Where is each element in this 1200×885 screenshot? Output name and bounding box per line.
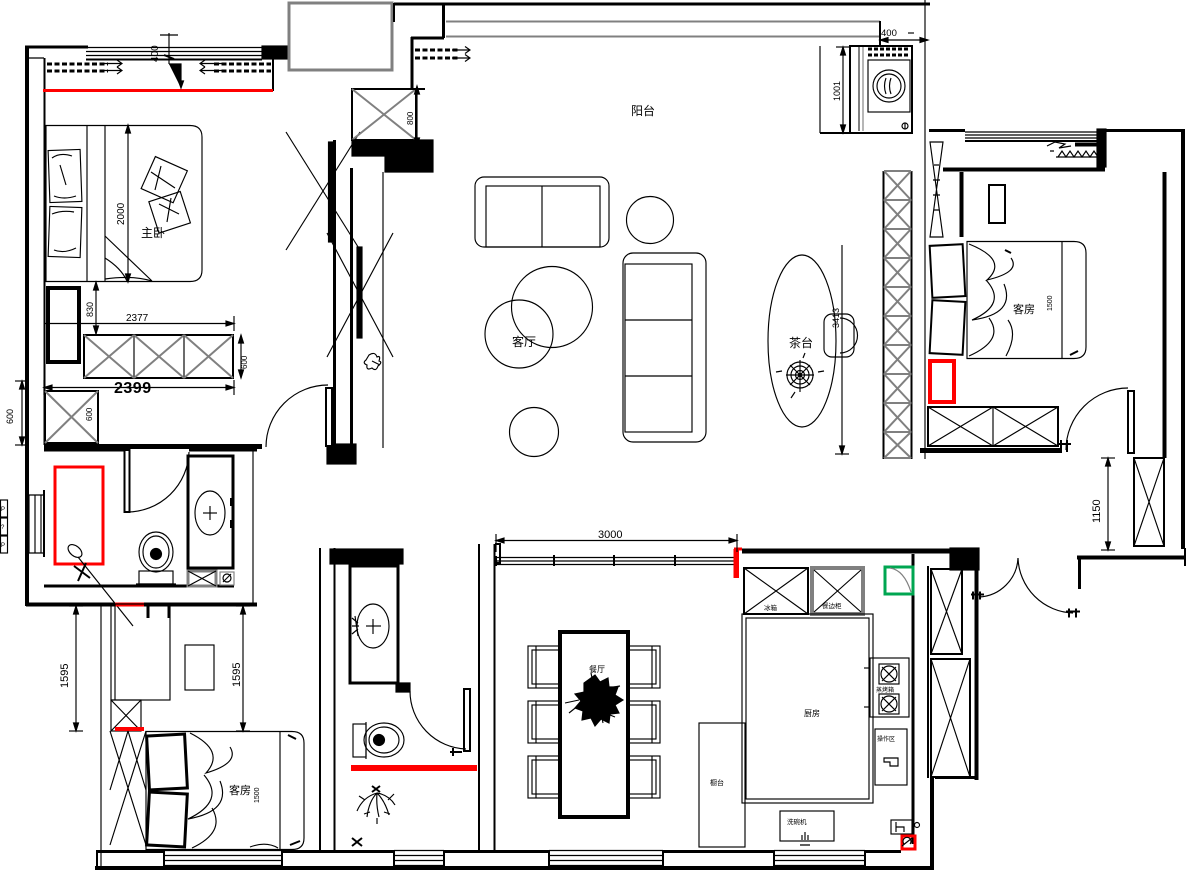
svg-text:3000: 3000	[598, 529, 622, 541]
svg-text:P: P	[1, 507, 5, 513]
svg-text:餐边柜: 餐边柜	[822, 601, 842, 610]
svg-text:餐厅: 餐厅	[589, 665, 605, 674]
svg-text:1500: 1500	[254, 787, 261, 803]
svg-text:操作区: 操作区	[877, 735, 895, 743]
svg-text:1001: 1001	[832, 81, 842, 101]
svg-text:600: 600	[85, 407, 94, 421]
svg-text:1595: 1595	[59, 664, 71, 688]
svg-text:400: 400	[150, 45, 161, 62]
svg-text:阳台: 阳台	[631, 103, 655, 118]
svg-text:主卧: 主卧	[141, 226, 165, 240]
svg-text:茶台: 茶台	[789, 335, 813, 350]
svg-text:600: 600	[240, 355, 249, 369]
svg-text:蒸烤箱: 蒸烤箱	[876, 686, 894, 694]
svg-text:1595: 1595	[231, 663, 243, 687]
svg-text:洗碗机: 洗碗机	[787, 817, 807, 826]
svg-text:830: 830	[85, 302, 95, 317]
svg-text:3413: 3413	[831, 308, 841, 328]
svg-text:客房: 客房	[1013, 302, 1035, 316]
svg-text:P: P	[1, 543, 5, 549]
svg-text:1150: 1150	[1091, 499, 1103, 523]
svg-text:800: 800	[406, 111, 415, 125]
svg-text:2000: 2000	[116, 202, 127, 225]
svg-text:400: 400	[881, 28, 897, 39]
svg-text:橱台: 橱台	[710, 778, 724, 787]
svg-text:2377: 2377	[126, 313, 149, 324]
svg-text:客房: 客房	[229, 783, 251, 797]
svg-text:1500: 1500	[1047, 295, 1054, 311]
svg-text:冰箱: 冰箱	[764, 603, 778, 612]
svg-text:厨房: 厨房	[804, 708, 820, 718]
svg-text:600: 600	[5, 409, 15, 424]
svg-text:客厅: 客厅	[512, 334, 536, 349]
svg-text:2399: 2399	[114, 380, 152, 397]
